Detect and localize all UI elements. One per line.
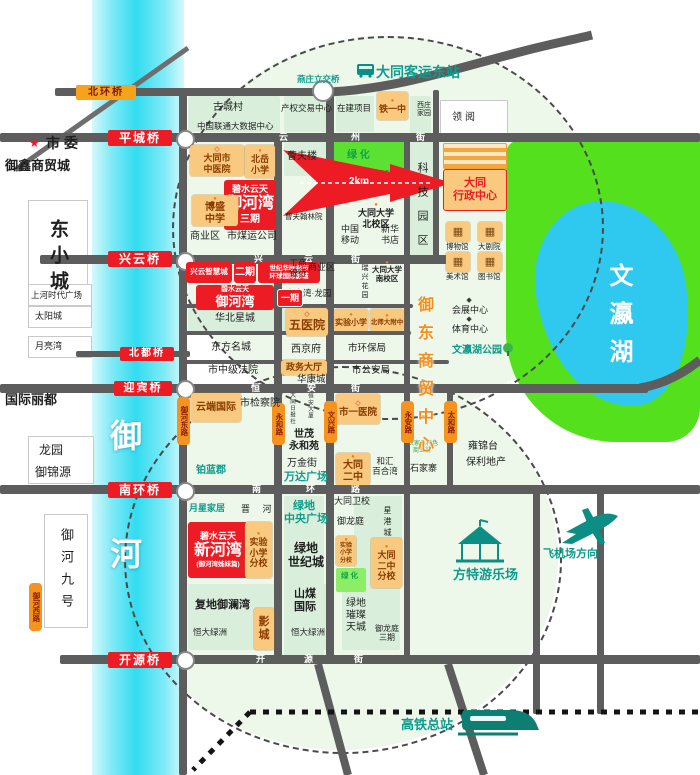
bolanjun-text: 铂蓝郡 — [196, 465, 226, 477]
yulongting-phase3: 御龙庭三期 — [372, 624, 402, 643]
ruixing-garden: 瑞兴花园 — [356, 258, 368, 306]
intermediate-court: 市中级法院 — [208, 365, 258, 377]
wenyinghu-park-text: 文瀛湖公园 — [452, 345, 502, 357]
huakangcheng: 华康城 — [297, 374, 326, 385]
gucunchun-text: 古城村 — [213, 102, 243, 114]
river-label-he-text: 河 — [110, 536, 142, 574]
yujinyuan-text: 御锦源 — [35, 465, 71, 479]
airport-direction-text: 飞机场方向 — [543, 548, 598, 561]
tech-park-label: 科技园区 — [410, 155, 428, 265]
experimental-primary-school-text: 实验小学 — [335, 318, 367, 327]
river-label-yu-text: 御 — [110, 418, 142, 456]
shiwei: 市委 — [46, 135, 82, 152]
datong-univ-north-line-1: 北校区 — [352, 219, 400, 230]
poly-realestate-text: 保利地产 — [466, 457, 506, 469]
shijiazhai: 石家寨 — [410, 463, 437, 474]
road-tag-wenxing-text: 文兴路 — [326, 411, 335, 434]
yanzhuang-interchange: 燕庄立交桥 — [297, 74, 340, 84]
fudi-yulanwan-text: 复地御澜湾 — [195, 599, 250, 612]
wenyinghu-park: 文瀛湖公园 — [452, 345, 502, 357]
airplane-icon — [562, 508, 618, 545]
procuratorate-text: 市检察院 — [240, 398, 280, 410]
hehui-baihewan: 和汇百合湾 — [368, 456, 402, 476]
taiyangcheng-text: 太阳城 — [35, 311, 62, 322]
yuexing-home-text: 月星家居 — [189, 503, 225, 514]
lingyue-text: 领阅 — [452, 112, 478, 124]
shiwei-star-icon: ★ — [29, 136, 40, 150]
huakangcheng-text: 华康城 — [297, 374, 326, 385]
greenland-century-city-line-0: 绿地 — [286, 541, 326, 555]
library-tile-text: ▦ — [485, 256, 495, 269]
road-tag-wenxing: 文兴路 — [324, 401, 337, 443]
datong-tcm-hospital: ◇大同市中医院 — [190, 145, 244, 176]
tech-park-label-text: 科技园区 — [415, 162, 428, 258]
jinhe: 晋 河 — [241, 504, 277, 515]
yongjintai: 雍锦台 — [468, 441, 498, 453]
road-tag-yuhe-west-text: 御河西路 — [31, 592, 40, 622]
bridge-beihuanqiao-text: 北环桥 — [88, 87, 124, 99]
greenland-century-city: 绿地世纪城 — [286, 541, 326, 569]
hsr-terminal: 高铁总站 — [401, 717, 453, 732]
shiwei-text: 市委 — [46, 135, 82, 152]
datong-no2-middle-school-line-0: 大同 — [343, 460, 363, 472]
beiyue-primary-school-line-1: 小学 — [251, 165, 269, 176]
government-service-hall-text: 政务大厅 — [286, 362, 322, 373]
experimental-primary-school: ●实验小学 — [334, 309, 368, 331]
shimao-yongheyuan: 世茂永和苑 — [284, 429, 324, 453]
dongfang-mingcheng-text: 东方名城 — [211, 342, 251, 354]
datong-univ-north-line-0: 大同大学 — [352, 208, 400, 219]
bridge-pingchengqiao: 平城桥 — [108, 130, 172, 146]
bus-icon — [357, 64, 374, 78]
datong-no2-middle-branch: ●大同二中分校 — [371, 538, 402, 588]
caofulou-text: 曹夫楼 — [287, 151, 317, 163]
fudi-yulanwan: 复地御澜湾 — [195, 599, 250, 612]
library-label: 图书馆 — [478, 273, 501, 282]
dongfang-mingcheng: 东方名城 — [211, 342, 251, 354]
project-xingyun-smart-city: 兴云智慧城 — [186, 262, 232, 283]
public-security-bureau-text: 市公安局 — [352, 365, 390, 376]
first-city-hospital-logo-icon: ◇ — [355, 400, 360, 407]
datong-univ-south-line-1: 南校区 — [372, 275, 402, 284]
shanmei-international-line-0: 山煤 — [288, 588, 322, 601]
yunduan-international-text: 云端国际 — [196, 402, 236, 414]
shimao-yongheyuan-line-1: 永和苑 — [284, 441, 324, 453]
theater-tile-text: ▦ — [485, 226, 495, 239]
beiyue-primary-school-line-0: 北岳 — [251, 154, 269, 165]
road-tag-yuhe-west: 御河西路 — [29, 583, 42, 631]
chanquan-center-text: 产权交易中心 — [281, 103, 332, 113]
caofu-hanlinyuan-text: 曹夫翰林院 — [285, 213, 323, 222]
bridge-xingyunqiao-text: 兴云桥 — [119, 252, 161, 266]
hengan-tower-text: 恒安大厦 — [307, 393, 313, 419]
hehui-baihewan-line-0: 和汇 — [368, 456, 402, 466]
wanda-plaza: 万达广场 — [284, 471, 328, 484]
theater-label: 大剧院 — [478, 243, 501, 252]
lvhua-bottom-label-text: 绿 化 — [341, 572, 358, 581]
experimental-primary-branch-line-1: 小学 — [249, 548, 267, 559]
road-tag-taihe: 太和路 — [444, 401, 457, 443]
datong-tcm-hospital-line-1: 中医院 — [203, 164, 230, 175]
international-lidu-text: 国际丽都 — [5, 392, 57, 407]
datong-no2-middle-branch-line-2: 分校 — [377, 571, 395, 582]
cinema-line-0: 影 — [259, 616, 270, 629]
first-city-hospital: ◇市一医院 — [336, 394, 380, 424]
greenland-central-plaza-line-0: 绿地 — [284, 500, 324, 513]
museum-label-text: 博物馆 — [446, 243, 469, 252]
lvhua-top-label: 绿 化 — [347, 150, 370, 162]
experimental-primary-branch-2-line-2: 分校 — [340, 558, 352, 565]
government-service-hall: 政务大厅 — [281, 360, 327, 375]
project-xingyun-smart-city-text: 兴云智慧城 — [190, 268, 228, 277]
hengda-lvzhou-west: 恒大绿洲 — [193, 627, 227, 637]
lvhua-bottom-label: 绿 化 — [341, 572, 358, 581]
first-city-hospital-text: 市一医院 — [339, 407, 377, 418]
greenland-cuican-line-0: 绿地 — [340, 598, 372, 610]
yuhe-no9-text: 御河九号 — [59, 528, 74, 616]
hengda-lvzhou-east: 恒大绿洲 — [291, 627, 325, 637]
convention-center-logo-icon: ◆ — [466, 297, 471, 304]
fangte-amusement-park: 方特游乐场 — [453, 567, 518, 582]
tieyi-middle-school-text: 铁一中 — [379, 104, 406, 115]
road-tag-yonghe-text: 永和路 — [274, 413, 283, 436]
fifth-hospital-text: 五医院 — [289, 318, 325, 332]
intermediate-court-text: 市中级法院 — [208, 365, 258, 377]
art-gallery-tile: ▦ — [446, 252, 470, 272]
international-lidu: 国际丽都 — [5, 392, 57, 407]
greenland-cuican: 绿地璀璨天城 — [340, 598, 372, 633]
experimental-primary-branch: ●实验小学分校 — [245, 522, 272, 578]
greenland-cuican-line-1: 璀璨 — [340, 610, 372, 622]
art-gallery-tile-text: ▦ — [453, 256, 463, 269]
bridge-kaiyuanqiao-text: 开源桥 — [119, 653, 161, 667]
admin-center-line-1: 行政中心 — [453, 190, 497, 203]
lake-label-wenyinghu: 文瀛湖 — [602, 240, 632, 400]
datong-no2-middle-branch-line-1: 二中 — [377, 561, 395, 572]
road-tag-yuhe-east: 御河东路 — [177, 397, 190, 445]
yujinyuan: 御锦源 — [35, 465, 71, 479]
art-gallery-label-text: 美术馆 — [446, 273, 469, 282]
tieyi-middle-school: ●铁一中 — [377, 92, 408, 120]
yudong-cbd: 御东商贸中心 — [412, 282, 432, 477]
longyuan: 龙园 — [39, 443, 63, 457]
river-label-yu: 御 — [110, 418, 142, 456]
park-tree-icon — [503, 343, 513, 356]
lake-label-wenyinghu-text: 文瀛湖 — [604, 240, 632, 400]
river-label-he: 河 — [110, 536, 142, 574]
longyuan-text: 龙园 — [39, 443, 63, 457]
project-yuhewan-phase1: 碧水云天御河湾 — [196, 285, 274, 310]
yudong-cbd-text: 御东商贸中心 — [413, 296, 432, 464]
yulongting-phase3-line-0: 御龙庭 — [372, 624, 402, 633]
bosheng-middle-school: ●博盛中学 — [192, 195, 238, 226]
shangyequ-north-text: 商业区 — [190, 231, 220, 243]
shanghe-times-plaza: 上河时代广场 — [31, 290, 82, 300]
yunduan-international: 云端国际 — [191, 393, 241, 422]
museum-tile: ▦ — [446, 222, 470, 242]
xijingfu: 西京府 — [291, 344, 321, 356]
shangyequ-xingyun: 商业区 — [308, 262, 335, 273]
sports-center-logo-icon: ◆ — [466, 316, 471, 323]
map-canvas: 北环桥平城桥兴云桥北都桥迎宾桥南环桥开源桥碧水云天御河湾三期兴云智慧城二期世纪华… — [0, 0, 700, 775]
project-phase1-tag-text: 一期 — [281, 293, 299, 304]
xinggangcheng-text: 星港城 — [383, 506, 392, 539]
zaijian-project: 在建项目 — [337, 103, 371, 113]
taiyangcheng: 太阳城 — [35, 311, 62, 322]
road-tag-taihe-text: 太和路 — [446, 411, 455, 434]
bridge-beiduqiao: 北都桥 — [120, 347, 174, 361]
jinhe-text: 晋 河 — [241, 504, 277, 515]
road-tag-yuhe-east-text: 御河东路 — [179, 406, 188, 436]
xizhuang-jiayuan-line-1: 家园 — [412, 110, 436, 118]
poly-realestate: 保利地产 — [466, 457, 506, 469]
project-yuhewan-phase3-line-0: 碧水云天 — [232, 184, 268, 195]
zaijian-project-text: 在建项目 — [337, 103, 371, 113]
cinema: 影城 — [254, 608, 274, 650]
hsr-terminal-text: 高铁总站 — [401, 717, 453, 732]
yanzhuang-interchange-text: 燕庄立交桥 — [297, 74, 340, 84]
arrow-distance-text: 2km — [349, 176, 369, 188]
yulongting-phase3-line-1: 三期 — [372, 633, 402, 642]
arrow-distance: 2km — [349, 176, 369, 188]
project-xinhewan-line-2: (御河湾姊妹篇) — [196, 561, 239, 569]
hengda-lvzhou-west-text: 恒大绿洲 — [193, 627, 227, 637]
bridge-nanhuanqiao-text: 南环桥 — [119, 483, 161, 497]
project-xinhewan-line-0: 碧水云天 — [200, 531, 236, 542]
project-yuhewan-phase3-line-2: 三期 — [240, 214, 260, 226]
greenland-central-plaza: 绿地中央广场 — [284, 500, 324, 526]
bridge-beihuanqiao: 北环桥 — [76, 85, 136, 100]
airport-direction: 飞机场方向 — [543, 548, 598, 561]
admin-center-line-0: 大同 — [464, 177, 486, 190]
project-xinhewan-line-1: 新河湾 — [194, 542, 242, 561]
datong-tcm-hospital-line-0: 大同市 — [203, 153, 230, 164]
unicom-data-center: 中国联通大数据中心 — [197, 121, 274, 131]
theater-label-text: 大剧院 — [478, 243, 501, 252]
hengda-lvzhou-east-text: 恒大绿洲 — [291, 627, 325, 637]
bridge-yingbinqiao-text: 迎宾桥 — [124, 382, 163, 395]
china-mobile-line-1: 移动 — [336, 235, 364, 246]
datong-no2-middle-school-line-1: 二中 — [343, 472, 363, 484]
bridge-yingbinqiao: 迎宾桥 — [114, 381, 172, 396]
yuxin-trade-city-text: 御鑫商贸城 — [5, 158, 70, 173]
coach-east-station: 大同客运东站 — [376, 64, 460, 81]
env-protection-bureau-text: 市环保局 — [348, 343, 386, 354]
public-security-bureau: 市公安局 — [352, 365, 390, 376]
hengan-tower: 恒安大厦 — [304, 390, 313, 422]
datong-daily: 大同日报社 — [286, 390, 295, 426]
gucunchun: 古城村 — [213, 102, 243, 114]
huabei-xingcheng: 华北星城 — [215, 313, 255, 325]
xizhuang-jiayuan: 西庄家园 — [412, 102, 436, 119]
greenland-central-plaza-line-1: 中央广场 — [284, 513, 324, 526]
datong-weixiao-text: 大同卫校 — [334, 496, 370, 507]
bridge-beiduqiao-text: 北都桥 — [129, 348, 165, 360]
experimental-primary-branch-2-line-1: 小学 — [340, 550, 352, 557]
shangyequ-north: 商业区 — [190, 231, 220, 243]
caofulou: 曹夫楼 — [287, 151, 317, 163]
project-phase2-tag: 二期 — [234, 262, 256, 283]
carousel-icon — [456, 520, 504, 561]
huabei-xingcheng-text: 华北星城 — [215, 313, 255, 325]
meiyun-company-text: 市煤运公司 — [227, 231, 277, 243]
museum-tile-text: ▦ — [453, 226, 463, 239]
shanmei-international: 山煤国际 — [288, 588, 322, 614]
datong-no2-middle-branch-line-0: 大同 — [377, 550, 395, 561]
hehui-baihewan-line-1: 百合湾 — [368, 466, 402, 476]
bosheng-middle-school-line-1: 中学 — [205, 214, 225, 226]
shimao-yongheyuan-line-0: 世茂 — [284, 429, 324, 441]
greenland-cuican-line-2: 天城 — [340, 622, 372, 634]
bridge-nanhuanqiao: 南环桥 — [108, 482, 172, 498]
datong-daily-text: 大同日报社 — [289, 392, 295, 425]
art-gallery-label: 美术馆 — [446, 273, 469, 282]
project-yuhewan-phase1-line-0: 碧水云天 — [221, 286, 249, 294]
caofu-hanlinyuan: 曹夫翰林院 — [285, 213, 323, 222]
env-protection-bureau: 市环保局 — [348, 343, 386, 354]
experimental-primary-branch-2: ●实验小学分校 — [336, 536, 356, 566]
datong-weixiao: 大同卫校 — [334, 496, 370, 507]
project-yuhewan-phase1-line-1: 御河湾 — [215, 294, 254, 309]
project-phase1-tag: 一期 — [277, 289, 303, 307]
project-xinhewan: 碧水云天新河湾(御河湾姊妹篇) — [188, 522, 248, 578]
shiwei-star-icon-text: ★ — [29, 136, 40, 150]
lingyue: 领阅 — [452, 112, 478, 124]
library-label-text: 图书馆 — [478, 273, 501, 282]
shanmei-international-line-1: 国际 — [288, 601, 322, 614]
datong-no2-middle-school: ●大同二中 — [336, 453, 370, 485]
bridge-xingyunqiao: 兴云桥 — [108, 251, 172, 267]
procuratorate: 市检察院 — [240, 398, 280, 410]
fifth-hospital: ◇五医院 — [286, 308, 328, 336]
sports-center: ◆体育中心 — [452, 313, 488, 334]
dongxiaocheng-text: 东小城 — [46, 219, 68, 297]
datong-univ-north: ●大同大学北校区 — [352, 202, 400, 229]
meiyun-company: 市煤运公司 — [227, 231, 277, 243]
shanghe-times-plaza-text: 上河时代广场 — [31, 290, 82, 300]
unicom-data-center-text: 中国联通大数据中心 — [197, 121, 274, 131]
yulongting: 御龙庭 — [337, 516, 364, 527]
sports-center-text: 体育中心 — [452, 324, 488, 335]
experimental-primary-branch-line-0: 实验 — [249, 537, 267, 548]
beishida-affiliated-school-text: 北师大附中 — [371, 319, 404, 327]
xijingfu-text: 西京府 — [291, 344, 321, 356]
coach-east-station-text: 大同客运东站 — [376, 64, 460, 81]
wanda-plaza-text: 万达广场 — [284, 471, 328, 484]
yongjintai-text: 雍锦台 — [468, 441, 498, 453]
beiyue-primary-school: ●北岳小学 — [245, 145, 275, 178]
wanjinjie-text: 万金街 — [287, 458, 317, 470]
datong-univ-south: ●大同大学南校区 — [372, 260, 402, 284]
shangyequ-xingyun-text: 商业区 — [308, 262, 335, 273]
experimental-primary-branch-line-2: 分校 — [249, 558, 267, 569]
cinema-line-1: 城 — [259, 629, 270, 642]
ruixing-garden-text: 瑞兴花园 — [360, 264, 368, 300]
beishida-affiliated-school: ●北师大附中 — [370, 309, 404, 331]
shijiazhai-text: 石家寨 — [410, 463, 437, 474]
xizhuang-jiayuan-line-0: 西庄 — [412, 102, 436, 110]
fangte-amusement-park-text: 方特游乐场 — [453, 567, 518, 582]
lvhua-top-label-text: 绿 化 — [347, 150, 370, 162]
theater-tile: ▦ — [478, 222, 502, 242]
road-tag-yongan-text: 永安路 — [403, 411, 412, 434]
wanjinjie: 万金街 — [287, 458, 317, 470]
yuhe-no9: 御河九号 — [56, 522, 74, 622]
library-tile: ▦ — [478, 252, 502, 272]
yuxin-trade-city: 御鑫商贸城 — [5, 158, 70, 173]
bosheng-middle-school-line-0: 博盛 — [205, 202, 225, 214]
yueliangwan: 月亮湾 — [35, 341, 62, 352]
bolanjun: 铂蓝郡 — [196, 465, 226, 477]
xinggangcheng: 星港城 — [380, 502, 392, 542]
bridge-pingchengqiao-text: 平城桥 — [119, 131, 161, 145]
greenland-century-city-line-1: 世纪城 — [286, 555, 326, 569]
yueliangwan-text: 月亮湾 — [35, 341, 62, 352]
chanquan-center: 产权交易中心 — [281, 103, 332, 113]
overlay-layer — [0, 0, 700, 775]
yuexing-home: 月星家居 — [189, 503, 225, 514]
project-phase2-tag-text: 二期 — [235, 267, 255, 279]
admin-center: 大同行政中心 — [443, 169, 507, 211]
bridge-kaiyuanqiao: 开源桥 — [108, 652, 172, 668]
museum-label: 博物馆 — [446, 243, 469, 252]
xinhua-bookstore-line-1: 书店 — [376, 235, 404, 246]
yulongting-text: 御龙庭 — [337, 516, 364, 527]
